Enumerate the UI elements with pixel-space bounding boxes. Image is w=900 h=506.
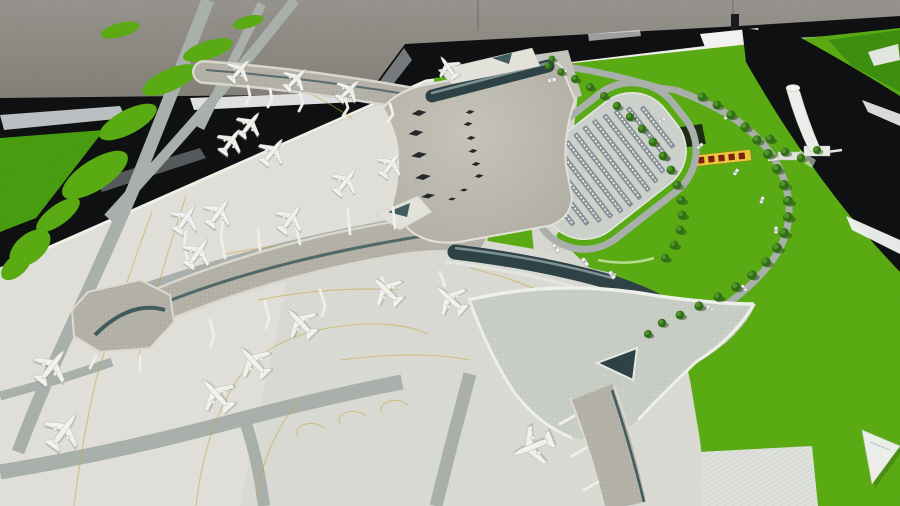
photo-of-airport-scale-model — [0, 0, 900, 506]
airport-model-scene — [0, 0, 900, 506]
photo-grain — [0, 0, 900, 506]
